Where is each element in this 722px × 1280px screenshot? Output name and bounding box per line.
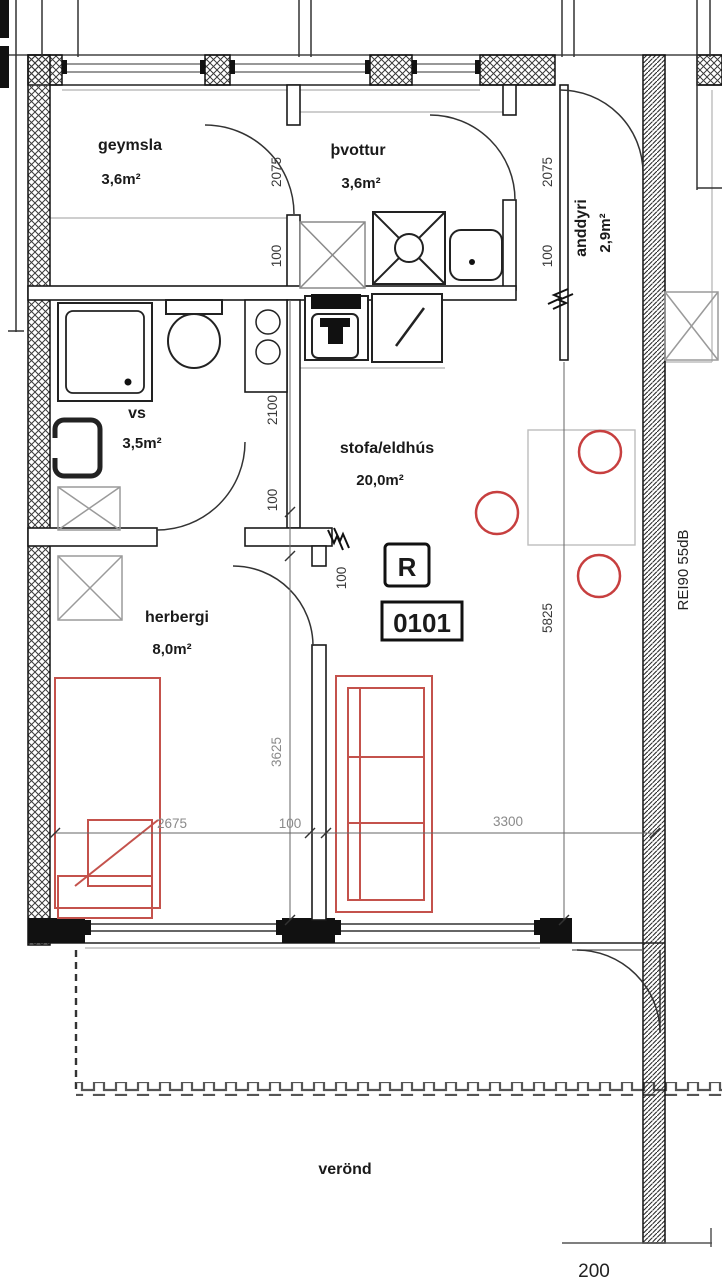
- shower-inner: [66, 311, 144, 393]
- dim-right-2075: 2075: [540, 157, 555, 187]
- label-geymsla: geymsla: [98, 137, 162, 154]
- unit-number: 0101: [393, 608, 451, 638]
- wall-vs-south-right: [245, 528, 332, 546]
- toilet-bowl: [168, 314, 220, 368]
- left-exterior-wall: [28, 55, 50, 945]
- kitchen-fixtures: [305, 294, 442, 362]
- vs-sink-opening: [52, 438, 64, 458]
- label-verond: verönd: [318, 1161, 371, 1178]
- laundry-basin: [450, 230, 502, 280]
- dim-stofa-5825: 5825: [540, 603, 555, 633]
- washer: [300, 222, 365, 288]
- wall-geymsla-thvottur-lower: [287, 215, 300, 290]
- area-stofa: 20,0m²: [356, 472, 404, 489]
- dim-left-100: 100: [269, 245, 284, 268]
- wall-thvottur-anddyri-upper: [503, 85, 516, 115]
- area-vs: 3,5m²: [122, 435, 161, 452]
- floor-plan-drawing: 2075 100 2100 100 100 3625 2075 100 5825…: [0, 0, 722, 1280]
- wall-vs-east: [287, 300, 300, 528]
- toilet-tank: [166, 300, 222, 314]
- floor-plan-canvas: 2075 100 2100 100 100 3625 2075 100 5825…: [0, 0, 722, 1280]
- party-wall: [643, 55, 665, 1243]
- wall-geymsla-thvottur-upper: [287, 85, 300, 125]
- laundry-sink: [373, 212, 445, 284]
- unit-letter: R: [398, 552, 417, 582]
- area-geymsla: 3,6m²: [101, 171, 140, 188]
- dim-right-100: 100: [540, 245, 555, 268]
- veranda-crenellated-edge: [76, 1082, 722, 1096]
- wall-herbergi-east: [312, 645, 326, 920]
- dim-herbergi-2675: 2675: [157, 816, 187, 831]
- dim-stub-100: 100: [334, 567, 349, 590]
- label-herbergi: herbergi: [145, 609, 209, 626]
- dim-veranda-200: 200: [578, 1261, 610, 1280]
- kitchen-sink-unit: [305, 294, 368, 360]
- dim-wall-100: 100: [279, 816, 302, 831]
- dim-vs-100: 100: [265, 489, 280, 512]
- label-vs: vs: [128, 405, 146, 422]
- duct-shaft: [245, 300, 287, 392]
- area-anddyri: 2,9m²: [597, 213, 614, 252]
- shower-drain: [125, 379, 132, 386]
- party-wall-rating: REI90 55dB: [675, 530, 692, 611]
- dim-stofa-3300: 3300: [493, 814, 523, 829]
- area-thvottur: 3,6m²: [341, 175, 380, 192]
- label-anddyri: anddyri: [573, 199, 590, 257]
- dim-left-2075: 2075: [269, 157, 284, 187]
- wall-anddyri-west: [560, 85, 568, 360]
- dim-vs-2100: 2100: [265, 395, 280, 425]
- cooktop-unit: [372, 294, 442, 362]
- dim-herbergi-3625: 3625: [269, 737, 284, 767]
- label-stofa: stofa/eldhús: [340, 440, 434, 457]
- wall-thvottur-anddyri-lower: [503, 200, 516, 290]
- wall-herbergi-east-top: [312, 546, 326, 566]
- area-herbergi: 8,0m²: [152, 641, 191, 658]
- label-thvottur: þvottur: [330, 142, 385, 159]
